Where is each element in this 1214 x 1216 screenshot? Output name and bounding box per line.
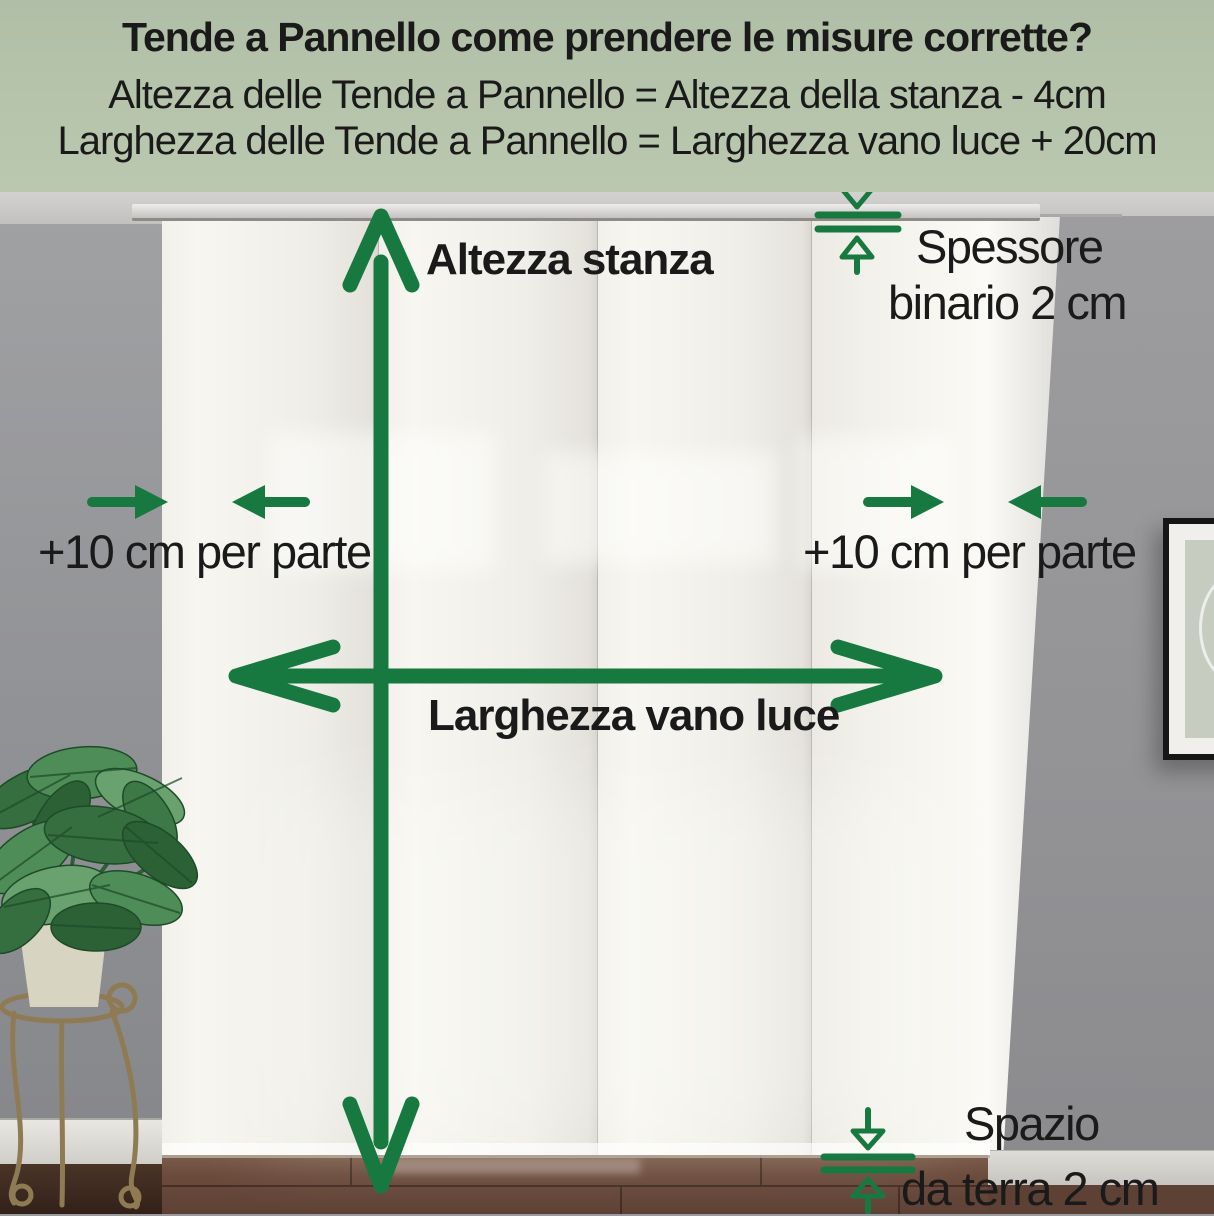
floor-grout-line [898, 1187, 900, 1214]
curtain-track-shadow [1040, 214, 1122, 217]
curtain-panel [598, 214, 812, 1155]
panel-curtains [162, 214, 990, 1155]
extra-width-label-right: +10 cm per parte [803, 524, 1136, 579]
track-thickness-label-line1: Spessore [916, 219, 1103, 274]
plant-leaves [0, 742, 209, 965]
plant-stand [2, 985, 139, 1207]
floor-grout-line [620, 1187, 622, 1214]
floor-grout-line [350, 1155, 352, 1185]
curtain-panel [812, 214, 990, 1155]
track-thickness-label-line2: binario 2 cm [888, 275, 1126, 330]
floor-grout-line [162, 1185, 990, 1187]
picture-circle-motif [1199, 570, 1214, 686]
header-band: Tende a Pannello come prendere le misure… [0, 0, 1214, 192]
framed-picture [1163, 518, 1214, 760]
floor-reflection [380, 1158, 640, 1174]
room-height-label: Altezza stanza [426, 235, 713, 285]
curtain-bottom-hem [162, 1143, 990, 1158]
floor-gap-label-line2: da terra 2 cm [901, 1161, 1158, 1216]
picture-art [1185, 540, 1214, 738]
opening-width-label: Larghezza vano luce [428, 691, 839, 741]
potted-plant [0, 735, 230, 1215]
width-formula: Larghezza delle Tende a Pannello = Largh… [57, 118, 1156, 164]
page-title: Tende a Pannello come prendere le misure… [122, 14, 1092, 61]
height-formula: Altezza delle Tende a Pannello = Altezza… [108, 72, 1106, 118]
floor-grout-line [760, 1155, 762, 1185]
curtain-track [132, 204, 1040, 221]
extra-width-label-left: +10 cm per parte [38, 524, 371, 579]
infographic-panel-curtain-measurements: { "header": { "title": "Tende a Pannello… [0, 0, 1214, 1214]
curtain-panel [379, 214, 598, 1155]
floor-gap-label-line1: Spazio [964, 1096, 1099, 1151]
